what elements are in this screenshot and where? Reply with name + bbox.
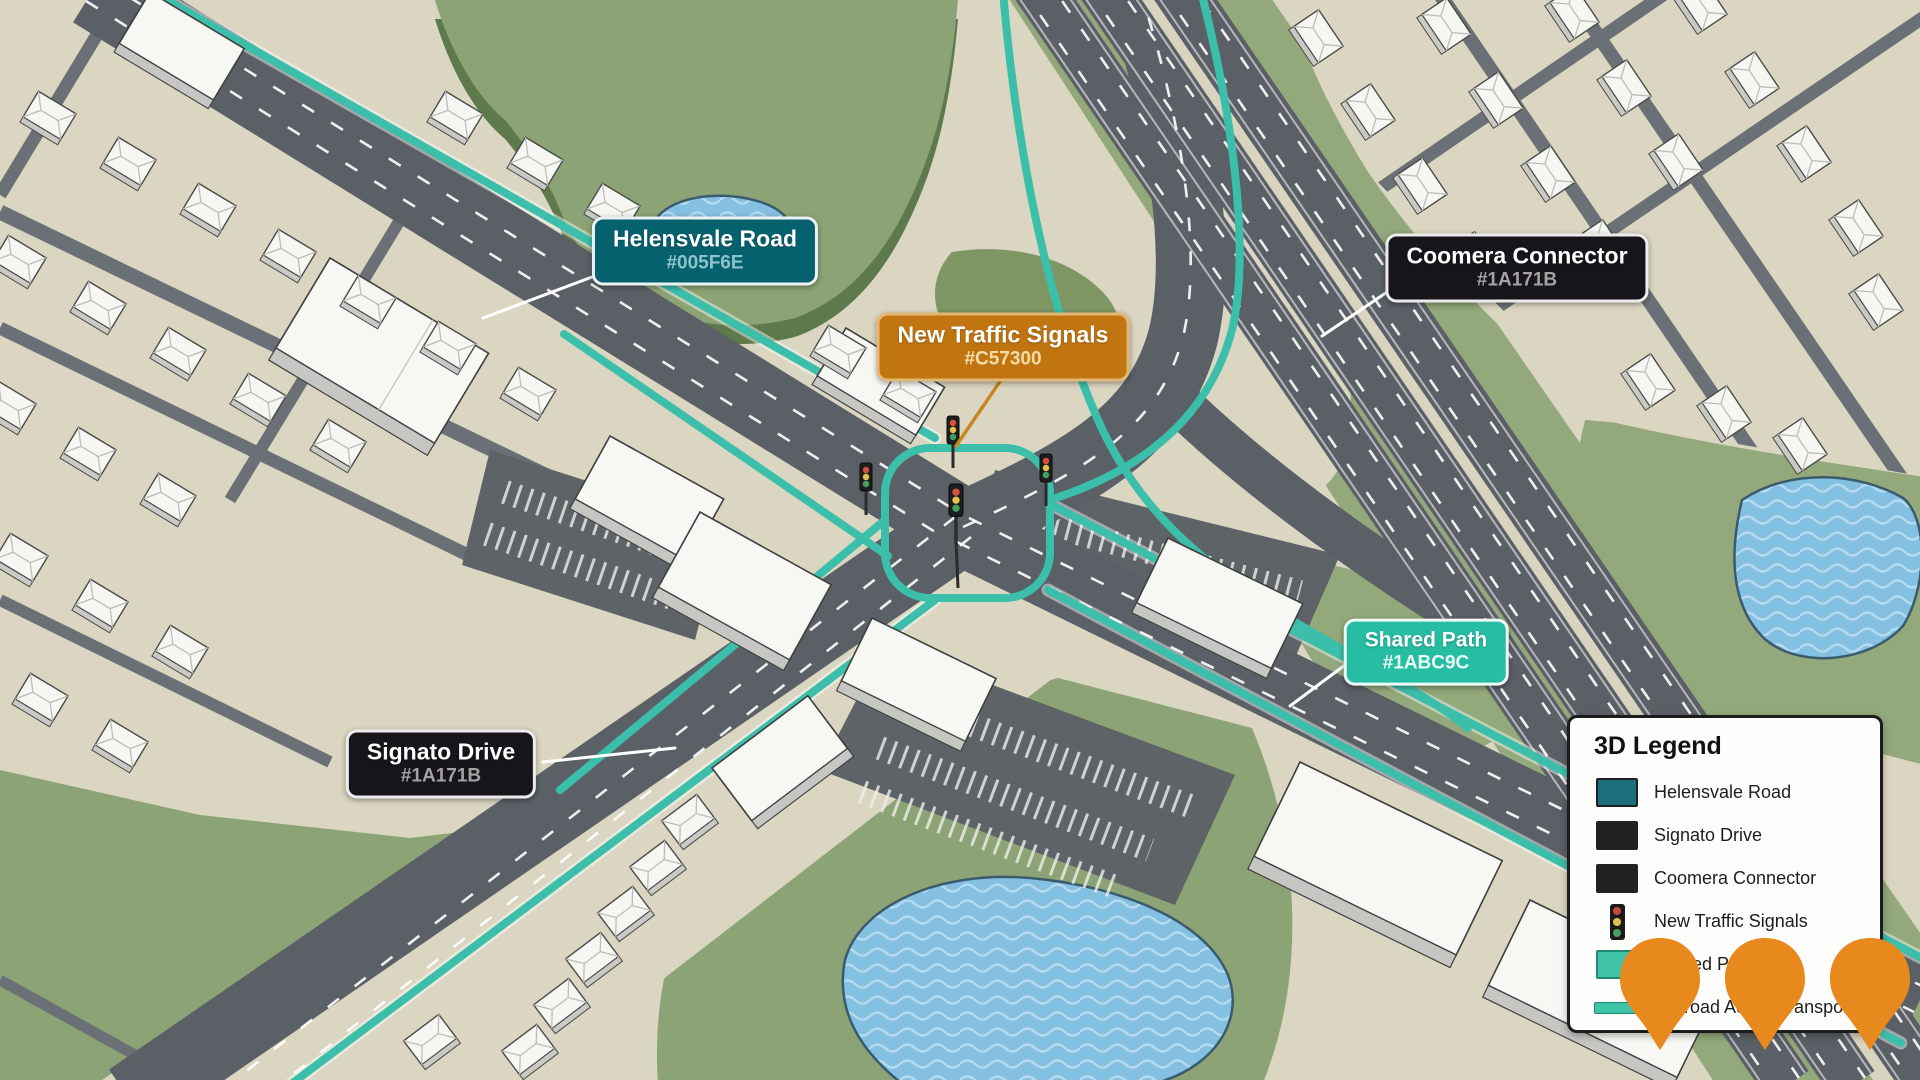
legend-title: 3D Legend <box>1594 732 1880 761</box>
label-code: #005F6E <box>613 252 797 273</box>
legend-item-signato-drive: Signato Drive <box>1594 814 1880 857</box>
coomera-connector-swatch <box>1596 864 1638 893</box>
legend-item-label: Helensvale Road <box>1654 782 1791 803</box>
map-pin-icon[interactable] <box>1828 936 1912 1052</box>
legend-item-coomera-connector: Coomera Connector <box>1594 857 1880 900</box>
legend-item-label: Signato Drive <box>1654 825 1762 846</box>
label-code: #C57300 <box>898 348 1109 369</box>
project-map-view: Helensvale Road #005F6E Coomera Connecto… <box>0 0 1920 1080</box>
label-code: #1A171B <box>367 765 515 786</box>
label-coomera-connector: Coomera Connector #1A171B <box>1385 233 1648 302</box>
traffic-light-icon <box>1610 904 1625 940</box>
legend-item-label: Coomera Connector <box>1654 868 1816 889</box>
legend-item-label: New Traffic Signals <box>1654 911 1808 932</box>
label-title: Signato Drive <box>367 739 515 765</box>
map-pin-icon[interactable] <box>1618 936 1702 1052</box>
label-code: #1ABC9C <box>1365 652 1488 673</box>
label-helensvale-road: Helensvale Road #005F6E <box>592 216 818 285</box>
label-new-traffic-signals: New Traffic Signals #C57300 <box>877 312 1130 381</box>
label-title: New Traffic Signals <box>898 322 1109 348</box>
helensvale-road-swatch <box>1596 778 1638 807</box>
label-title: Coomera Connector <box>1406 243 1627 269</box>
label-shared-path: Shared Path #1ABC9C <box>1344 619 1509 686</box>
signato-drive-swatch <box>1596 821 1638 850</box>
map-pin-icon[interactable] <box>1723 936 1807 1052</box>
label-code: #1A171B <box>1406 269 1627 290</box>
label-signato-drive: Signato Drive #1A171B <box>346 729 536 798</box>
label-title: Helensvale Road <box>613 226 797 252</box>
label-title: Shared Path <box>1365 629 1488 653</box>
legend-item-helensvale-road: Helensvale Road <box>1594 771 1880 814</box>
